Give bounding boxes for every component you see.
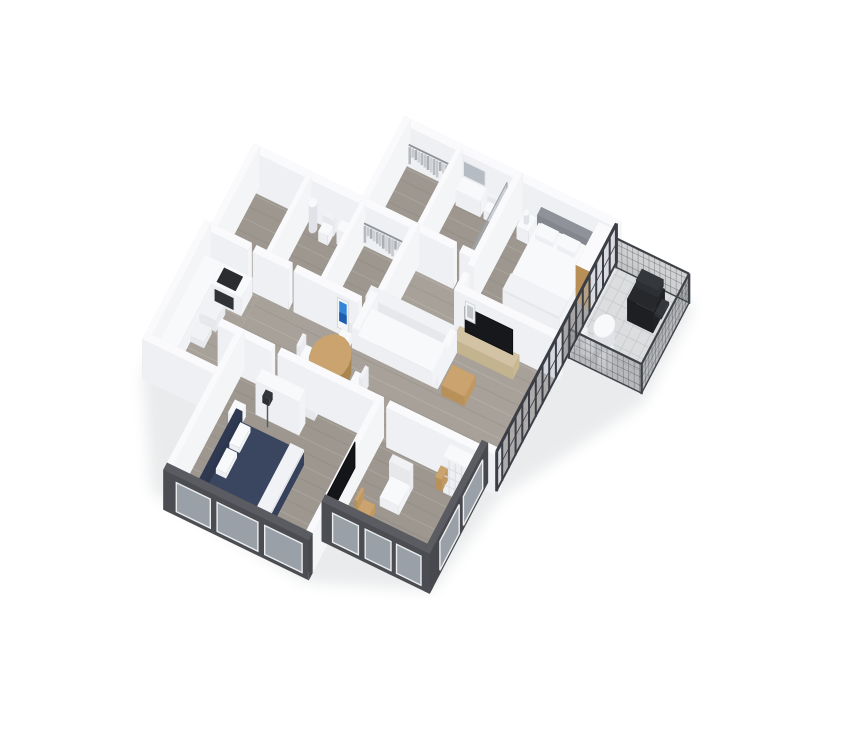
master-lamp bbox=[524, 210, 530, 225]
apartment-3d-floorplan bbox=[0, 0, 856, 747]
bath1-water-heater bbox=[309, 198, 318, 233]
floorplan-figure bbox=[0, 0, 856, 747]
